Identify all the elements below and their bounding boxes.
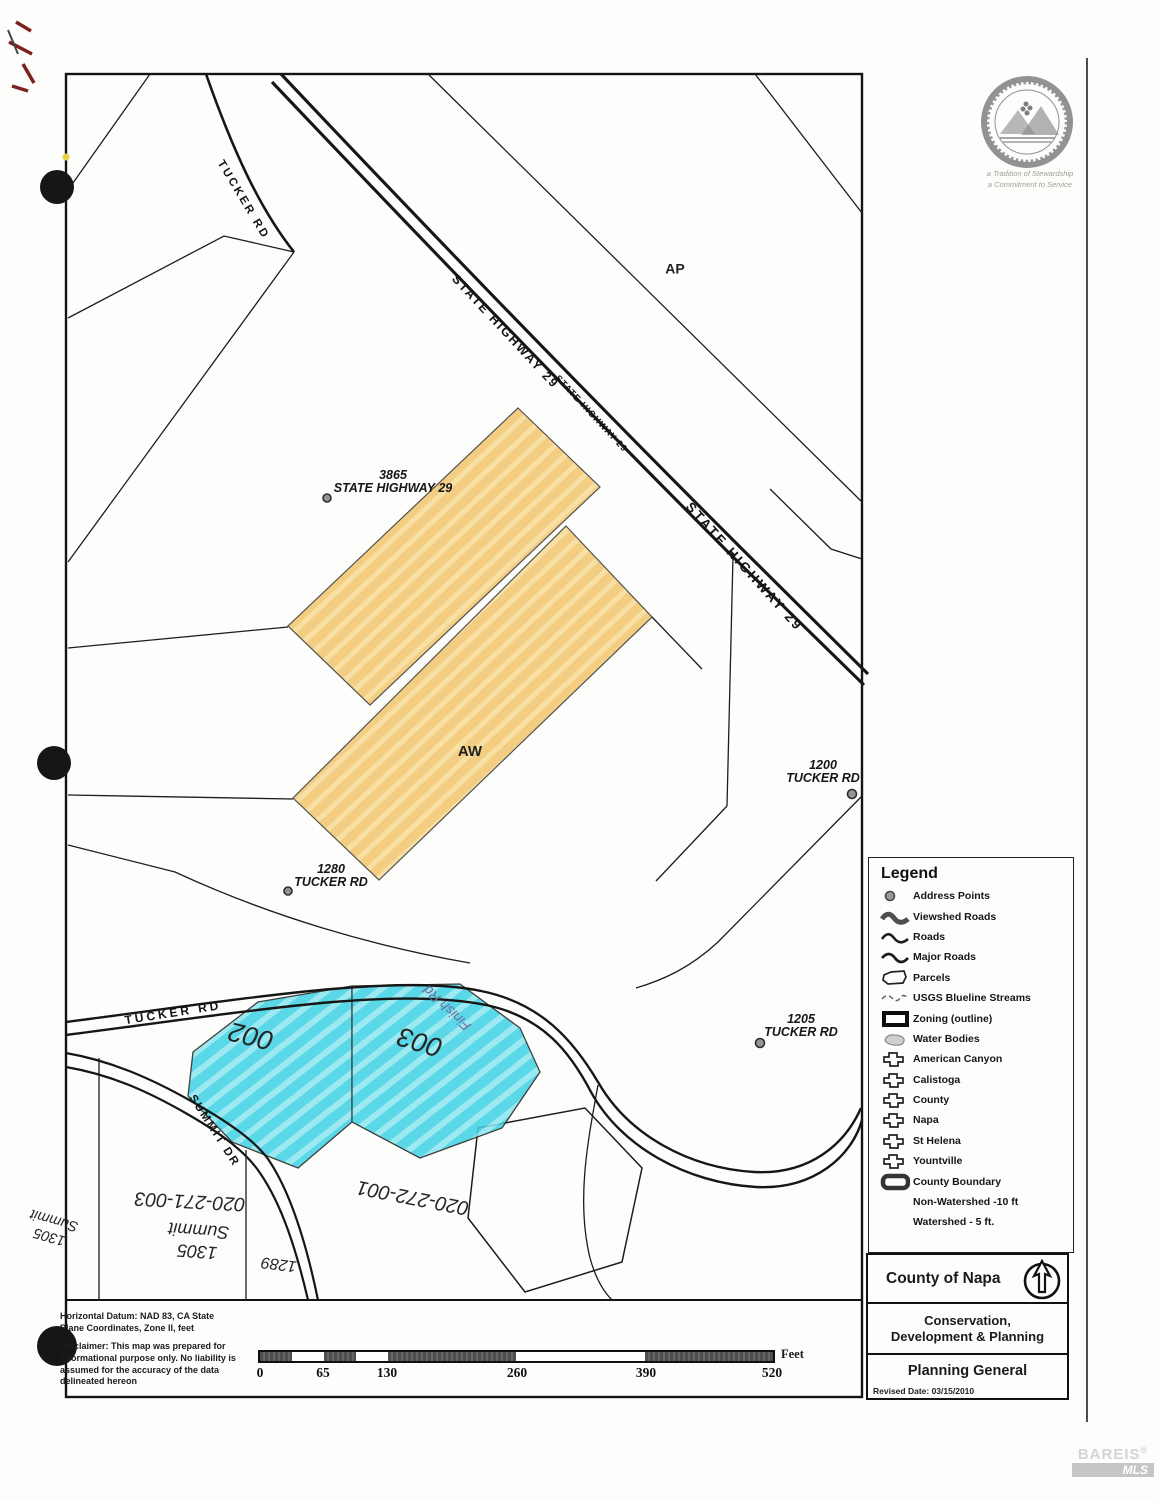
title-block-maptype-row: Planning General Revised Date: 03/15/201… — [868, 1355, 1067, 1398]
scale-bar-unit: Feet — [781, 1347, 804, 1362]
legend-item: Major Roads — [869, 947, 1073, 967]
scale-segment — [260, 1352, 292, 1361]
legend-item: Parcels — [869, 968, 1073, 988]
watermark-name: BAREIS® — [1072, 1446, 1154, 1462]
scale-segment — [516, 1352, 645, 1361]
legend-item: Watershed - 5 ft. — [869, 1212, 1073, 1232]
north-arrow-icon — [1020, 1257, 1064, 1301]
legend-item: County Boundary — [869, 1171, 1073, 1191]
parcel-icon — [877, 969, 913, 986]
scale-bar-segments — [258, 1350, 775, 1363]
napa-county-seal — [984, 79, 1070, 165]
scale-tick: 130 — [377, 1365, 397, 1381]
city-boundary-icon — [877, 1050, 913, 1068]
legend-item: St Helena — [869, 1131, 1073, 1151]
address-point-icon — [877, 888, 913, 904]
map-notes: Horizontal Datum: NAD 83, CA State Plane… — [60, 1311, 240, 1395]
legend-item: Napa — [869, 1110, 1073, 1130]
legend-item-list: Address Points Viewshed Roads Roads Majo… — [869, 886, 1073, 1233]
legend-item: Yountville — [869, 1151, 1073, 1171]
legend-item: Water Bodies — [869, 1029, 1073, 1049]
water-body-icon — [877, 1031, 913, 1047]
legend-item: County — [869, 1090, 1073, 1110]
seal-tagline-line2: a Commitment to Service — [962, 179, 1098, 190]
department-name: Conservation, Development & Planning — [868, 1313, 1067, 1344]
legend-item: American Canyon — [869, 1049, 1073, 1069]
scale-segment — [292, 1352, 324, 1361]
watermark-sub: MLS — [1072, 1463, 1154, 1477]
handwritten-1289: 1289 — [260, 1252, 297, 1273]
stream-icon — [877, 990, 913, 1006]
legend-item: Zoning (outline) — [869, 1008, 1073, 1028]
scale-tick: 260 — [507, 1365, 527, 1381]
city-boundary-icon — [877, 1071, 913, 1089]
scale-segment — [645, 1352, 773, 1361]
address-street: STATE HIGHWAY 29 — [334, 482, 453, 495]
title-block-department-row: Conservation, Development & Planning — [868, 1304, 1067, 1355]
handwritten-1305-summit: 1305 Summit — [166, 1218, 230, 1264]
legend-item: USGS Blueline Streams — [869, 988, 1073, 1008]
handwritten-1305: 1305 — [166, 1239, 228, 1264]
city-boundary-icon — [877, 1132, 913, 1150]
scale-bar-ticks: 0 65 130 260 390 520 — [258, 1363, 775, 1381]
address-street: TUCKER RD — [294, 876, 368, 889]
scale-tick: 0 — [257, 1365, 264, 1381]
address-street: TUCKER RD — [786, 772, 860, 785]
seal-tagline: a Tradition of Stewardship a Commitment … — [962, 168, 1098, 191]
city-boundary-icon — [877, 1091, 913, 1109]
legend-item: Viewshed Roads — [869, 906, 1073, 926]
scale-tick: 390 — [636, 1365, 656, 1381]
title-block-agency-row: County of Napa — [868, 1255, 1067, 1304]
datum-note: Horizontal Datum: NAD 83, CA State Plane… — [60, 1311, 240, 1334]
city-boundary-icon — [877, 1111, 913, 1129]
legend-title: Legend — [881, 865, 1073, 883]
legend-item: Address Points — [869, 886, 1073, 906]
scale-tick: 65 — [316, 1365, 330, 1381]
scanned-parcel-map-page: TUCKER RD STATE HIGHWAY 29 STATE HIGHWAY… — [0, 0, 1159, 1499]
zoning-label-aw: AW — [458, 744, 482, 760]
agency-name: County of Napa — [886, 1270, 1001, 1288]
handwritten-apn-020-271-003: 020-271-003 — [134, 1188, 246, 1214]
map-type: Planning General — [908, 1363, 1027, 1379]
major-road-icon — [877, 949, 913, 965]
address-label-1200: 1200 TUCKER RD — [786, 759, 860, 785]
scale-segment — [324, 1352, 357, 1361]
address-label-1280: 1280 TUCKER RD — [294, 863, 368, 889]
bareis-mls-watermark: BAREIS® MLS — [1072, 1446, 1154, 1477]
zoning-outline-icon — [877, 1010, 913, 1028]
legend: Legend Address Points Viewshed Roads Roa… — [868, 857, 1074, 1253]
legend-item: Calistoga — [869, 1070, 1073, 1090]
scale-segment — [388, 1352, 516, 1361]
viewshed-road-icon — [877, 909, 913, 925]
county-boundary-icon — [877, 1173, 913, 1191]
legend-item: Roads — [869, 927, 1073, 947]
scale-bar: 0 65 130 260 390 520 Feet — [258, 1350, 775, 1381]
city-boundary-icon — [877, 1152, 913, 1170]
address-label-1205: 1205 TUCKER RD — [764, 1013, 838, 1039]
scale-segment — [356, 1352, 388, 1361]
road-icon — [877, 929, 913, 945]
scale-tick: 520 — [762, 1365, 782, 1381]
seal-tagline-line1: a Tradition of Stewardship — [962, 168, 1098, 179]
zoning-label-ap: AP — [665, 262, 684, 277]
title-block: County of Napa Conservation, Development… — [866, 1253, 1069, 1400]
address-street: TUCKER RD — [764, 1026, 838, 1039]
disclaimer-note: Disclaimer: This map was prepared for in… — [60, 1341, 240, 1388]
address-label-3865: 3865 STATE HIGHWAY 29 — [334, 469, 453, 495]
legend-item: Non-Watershed -10 ft — [869, 1192, 1073, 1212]
revised-date: Revised Date: 03/15/2010 — [873, 1386, 974, 1396]
